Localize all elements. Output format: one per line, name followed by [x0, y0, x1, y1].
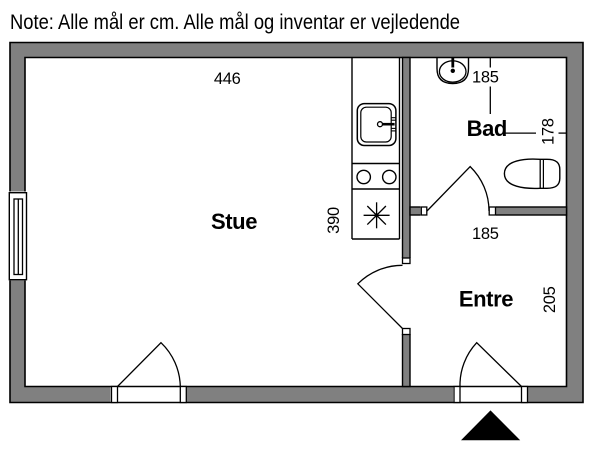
svg-text:185: 185: [472, 225, 499, 243]
svg-text:Bad: Bad: [467, 116, 507, 141]
svg-text:205: 205: [541, 286, 559, 313]
svg-text:390: 390: [325, 207, 343, 234]
svg-text:Stue: Stue: [211, 209, 257, 234]
svg-text:178: 178: [540, 118, 558, 145]
svg-text:185: 185: [472, 68, 499, 86]
svg-text:446: 446: [214, 70, 241, 88]
svg-text:Note: Alle mål er cm. Alle mål: Note: Alle mål er cm. Alle mål og invent…: [10, 11, 460, 34]
svg-text:Entre: Entre: [459, 287, 513, 312]
